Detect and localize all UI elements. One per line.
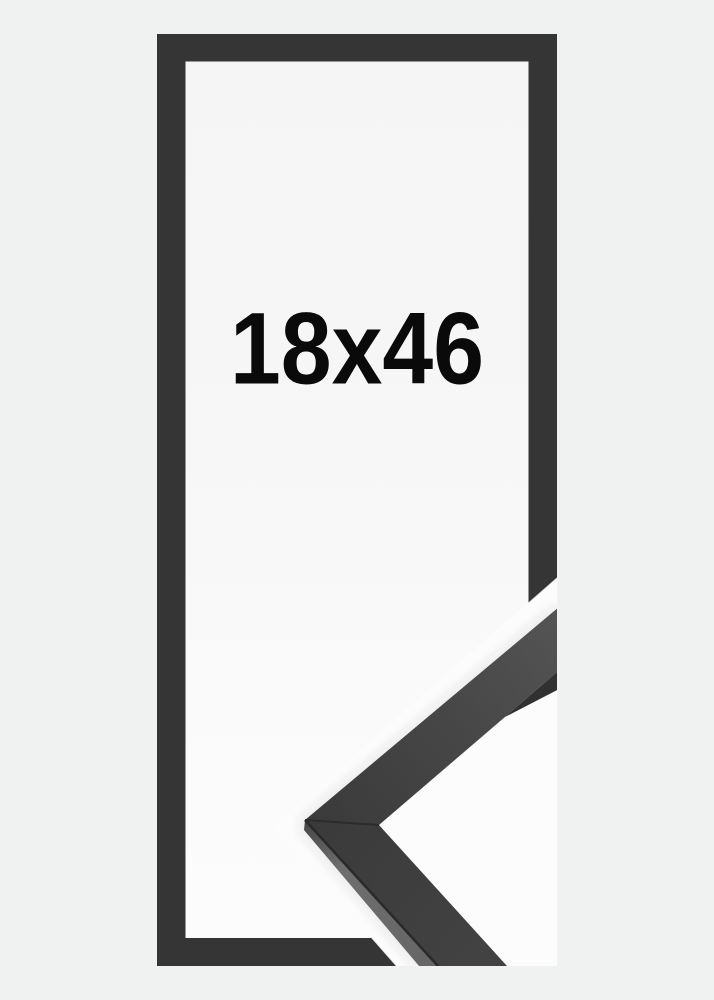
svg-text:18x46: 18x46	[230, 292, 484, 406]
